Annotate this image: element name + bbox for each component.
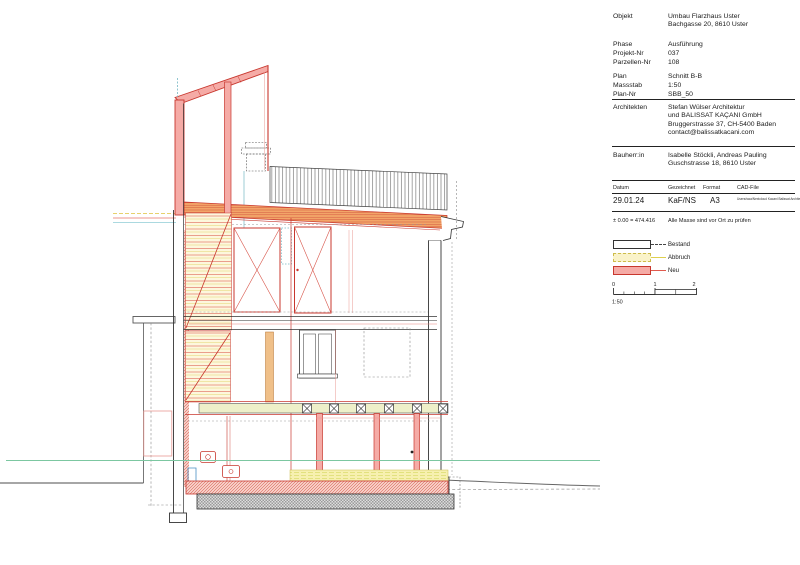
terrain-right (441, 480, 600, 490)
field-value: Schnitt B-B (668, 73, 796, 81)
divider (612, 99, 795, 100)
steel-beam-symbol (303, 404, 312, 413)
window (300, 330, 336, 378)
bestand-swatch (613, 240, 651, 249)
meta-gezeichnet: KaF/NS (668, 197, 696, 205)
field-projekt-nr: Projekt-Nr 037 (613, 50, 796, 58)
scale-bar: 0 1 2 1:50 (611, 279, 711, 307)
section-drawing (0, 0, 612, 565)
steel-beam-symbol (439, 404, 448, 413)
meta-header-format: Format (703, 184, 720, 192)
scale-tick-0: 0 (612, 282, 615, 288)
field-label: Objekt (613, 13, 668, 30)
divider (612, 146, 795, 147)
divider (612, 193, 795, 194)
field-label: Architekten (613, 104, 668, 137)
abbruch-swatch (613, 253, 651, 262)
field-value: Stefan Wülser Architektur und BALISSAT K… (668, 104, 796, 137)
field-phase: Phase Ausführung (613, 41, 796, 49)
elevation-note: ± 0.00 = 474.416 (613, 217, 655, 225)
check-note: Alle Masse sind vor Ort zu prüfen (668, 217, 751, 225)
scale-tick-1: 1 (654, 282, 657, 288)
field-label: Bauherr:in (613, 152, 668, 169)
field-label: Phase (613, 41, 668, 49)
abbruch-line (651, 257, 666, 258)
legend-item-bestand: Bestand (613, 240, 795, 253)
legend-item-neu: Neu (613, 266, 795, 279)
beam-band (185, 402, 448, 415)
title-block: Objekt Umbau Flarzhaus Uster Bachgasse 2… (612, 0, 796, 565)
steel-beam-symbol (413, 404, 422, 413)
legend-item-abbruch: Abbruch (613, 253, 795, 266)
datum-lines (113, 214, 176, 223)
field-value: 108 (668, 59, 796, 67)
meta-header-cadfile: CAD-File (737, 184, 759, 192)
neu-swatch (613, 266, 651, 275)
field-label: Projekt-Nr (613, 50, 668, 58)
meta-header-datum: Datum (613, 184, 629, 192)
field-value: Isabelle Stöckli, Andreas Pauling Guschs… (668, 152, 796, 169)
field-value: Umbau Flarzhaus Uster Bachgasse 20, 8610… (668, 13, 796, 30)
basin (223, 466, 240, 478)
divider (612, 180, 795, 181)
scale-tick-2: 2 (693, 282, 696, 288)
field-bauherr: Bauherr:in Isabelle Stöckli, Andreas Pau… (613, 152, 796, 169)
legend-label: Bestand (668, 241, 690, 249)
steel-beam-symbol (385, 404, 394, 413)
legend-label: Abbruch (668, 254, 690, 262)
field-massstab: Massstab 1:50 (613, 82, 796, 90)
legend-label: Neu (668, 267, 679, 275)
annex-outline (144, 411, 172, 456)
scale-ratio: 1:50 (612, 300, 623, 306)
field-label: Plan (613, 73, 668, 81)
plan-sheet: Objekt Umbau Flarzhaus Uster Bachgasse 2… (0, 0, 800, 565)
field-objekt: Objekt Umbau Flarzhaus Uster Bachgasse 2… (613, 13, 796, 30)
field-label: Parzellen-Nr (613, 59, 668, 67)
neu-line (651, 270, 666, 271)
meta-format: A3 (710, 197, 720, 205)
timber-post (266, 332, 274, 402)
stair-upper (186, 213, 232, 330)
meta-datum: 29.01.24 (613, 197, 644, 205)
field-value: 1:50 (668, 82, 796, 90)
field-value: Ausführung (668, 41, 796, 49)
meta-header-gezeichnet: Gezeichnet (668, 184, 695, 192)
steel-beam-symbol (357, 404, 366, 413)
bestand-line (651, 244, 666, 245)
steel-beam-symbol (330, 404, 339, 413)
existing-roof-hatch (270, 167, 447, 211)
field-label: Massstab (613, 82, 668, 90)
meta-cad-file: Users/swa/Nextcloud Kacani Balissat Arch… (737, 197, 797, 201)
field-architekten: Architekten Stefan Wülser Architektur un… (613, 104, 796, 137)
field-plan: Plan Schnitt B-B (613, 73, 796, 81)
field-value: 037 (668, 50, 796, 58)
door-handle (411, 451, 414, 454)
divider (612, 211, 795, 212)
stair-lower (186, 331, 231, 402)
field-parzellen-nr: Parzellen-Nr 108 (613, 59, 796, 67)
